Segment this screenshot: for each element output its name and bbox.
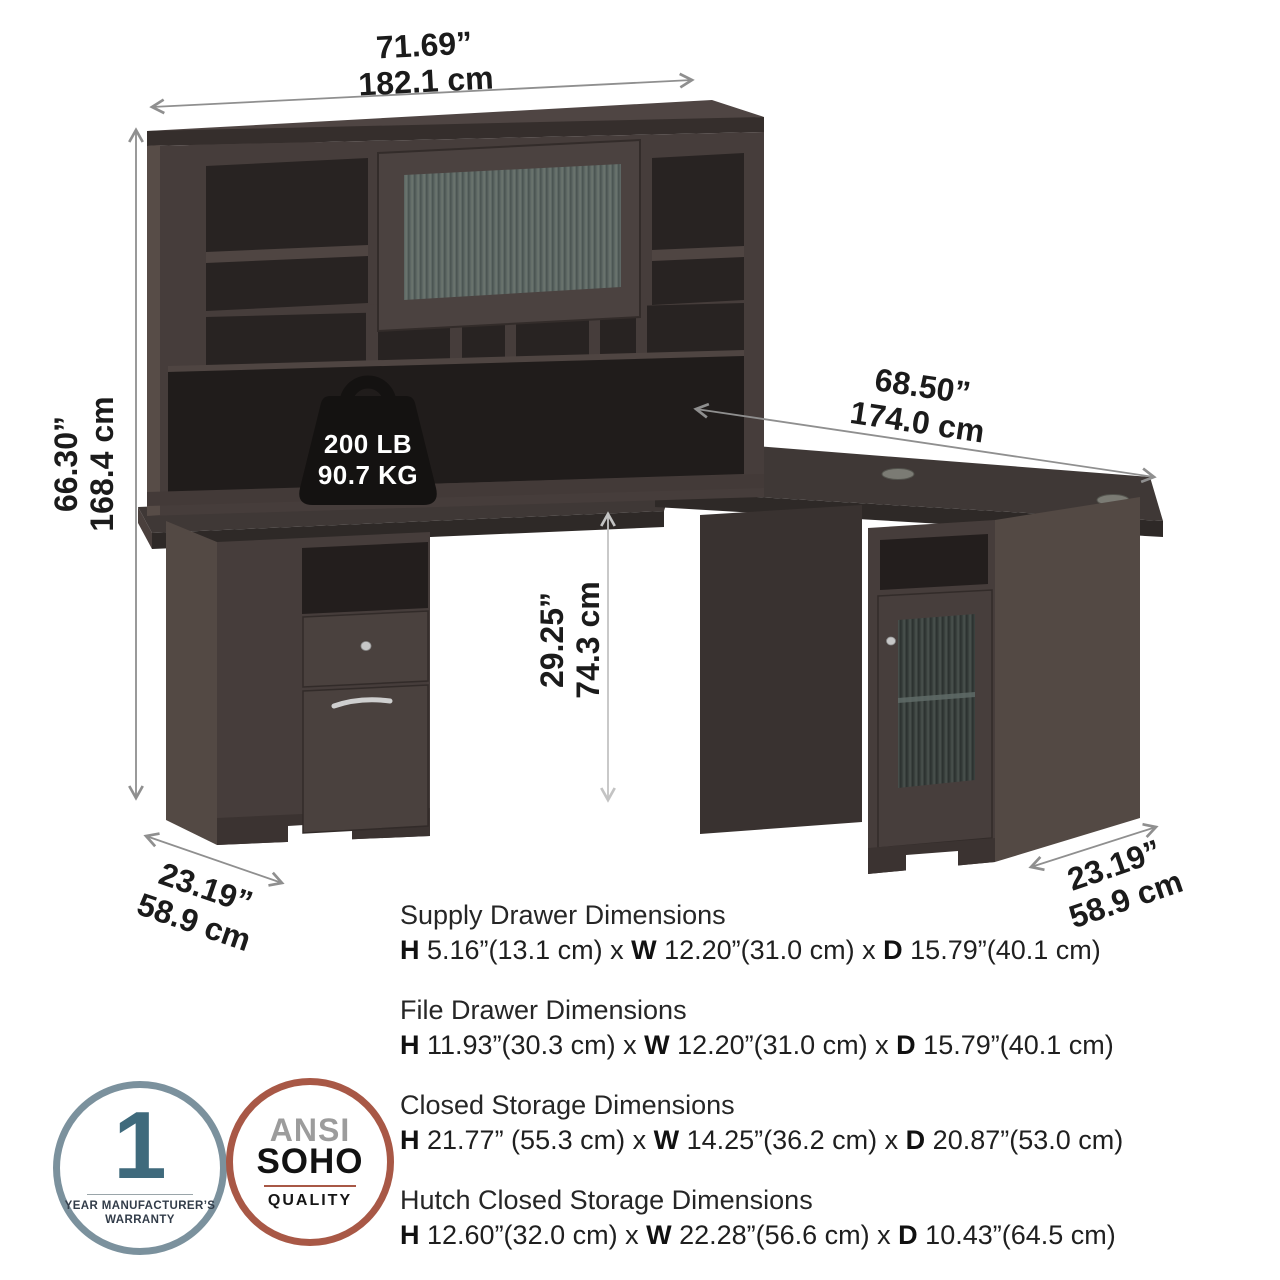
hutch-right-cubby — [652, 153, 744, 305]
spec-file-drawer: File Drawer Dimensions H 11.93”(30.3 cm)… — [400, 994, 1140, 1061]
file-drawer — [303, 685, 428, 833]
modesty-panel — [700, 505, 862, 834]
hutch — [147, 100, 764, 516]
left-pedestal — [166, 521, 430, 847]
soho-label: SOHO — [256, 1145, 363, 1179]
spec-title: File Drawer Dimensions — [400, 994, 1140, 1026]
spec-values: H 11.93”(30.3 cm) x W 12.20”(31.0 cm) x … — [400, 1029, 1140, 1061]
warranty-number: 1 — [113, 1103, 166, 1189]
ansi-soho-badge: ANSI SOHO QUALITY — [226, 1078, 394, 1246]
spec-title: Closed Storage Dimensions — [400, 1089, 1140, 1121]
product-dimension-diagram: 200 LB 90.7 KG 71.69” 182.1 cm 66.30” 16… — [0, 0, 1280, 1280]
dimension-desk-height: 29.25” 74.3 cm — [534, 490, 606, 790]
left-open-cubby — [302, 542, 428, 614]
cubby-divider — [366, 304, 378, 367]
spec-values: H 12.60”(32.0 cm) x W 22.28”(56.6 cm) x … — [400, 1219, 1140, 1251]
warranty-badge: 1 YEAR MANUFACTURER’S WARRANTY — [53, 1081, 227, 1255]
right-pedestal-side — [995, 497, 1140, 862]
weight-capacity-lb: 200 LB — [298, 429, 438, 459]
quality-label: QUALITY — [268, 1193, 352, 1209]
badge-divider — [87, 1194, 193, 1195]
grommet-hole — [882, 469, 914, 480]
ansi-label: ANSI — [270, 1115, 350, 1145]
spec-title: Supply Drawer Dimensions — [400, 899, 1140, 931]
spec-closed-storage: Closed Storage Dimensions H 21.77” (55.3… — [400, 1089, 1140, 1156]
storage-door-knob — [887, 637, 896, 645]
spec-values: H 5.16”(13.1 cm) x W 12.20”(31.0 cm) x D… — [400, 934, 1140, 966]
spec-hutch-closed-storage: Hutch Closed Storage Dimensions H 12.60”… — [400, 1184, 1140, 1251]
desk-illustration — [0, 0, 1280, 1280]
badge-divider — [264, 1185, 356, 1187]
right-open-shelf — [880, 534, 988, 590]
dimension-cm: 74.3 cm — [570, 490, 606, 790]
hutch-lower-opening — [168, 356, 744, 492]
dimension-inches: 66.30” — [48, 314, 84, 614]
spec-supply-drawer: Supply Drawer Dimensions H 5.16”(13.1 cm… — [400, 899, 1140, 966]
dimension-cm: 168.4 cm — [84, 314, 120, 614]
hutch-glass-pane — [404, 164, 621, 300]
dimension-inches: 29.25” — [534, 490, 570, 790]
supply-drawer-knob — [361, 642, 371, 651]
weight-capacity-kg: 90.7 KG — [298, 460, 438, 490]
warranty-text-line1: YEAR MANUFACTURER’S — [65, 1199, 216, 1213]
left-pedestal-side — [166, 521, 217, 845]
warranty-text-line2: WARRANTY — [105, 1213, 175, 1227]
hutch-left-edge — [147, 145, 160, 516]
spec-title: Hutch Closed Storage Dimensions — [400, 1184, 1140, 1216]
spec-values: H 21.77” (55.3 cm) x W 14.25”(36.2 cm) x… — [400, 1124, 1140, 1156]
right-pedestal-base-notch — [906, 851, 958, 875]
hutch-left-cubby — [206, 158, 368, 311]
right-pedestal — [868, 497, 1140, 875]
dimension-overall-height: 66.30” 168.4 cm — [48, 314, 120, 614]
